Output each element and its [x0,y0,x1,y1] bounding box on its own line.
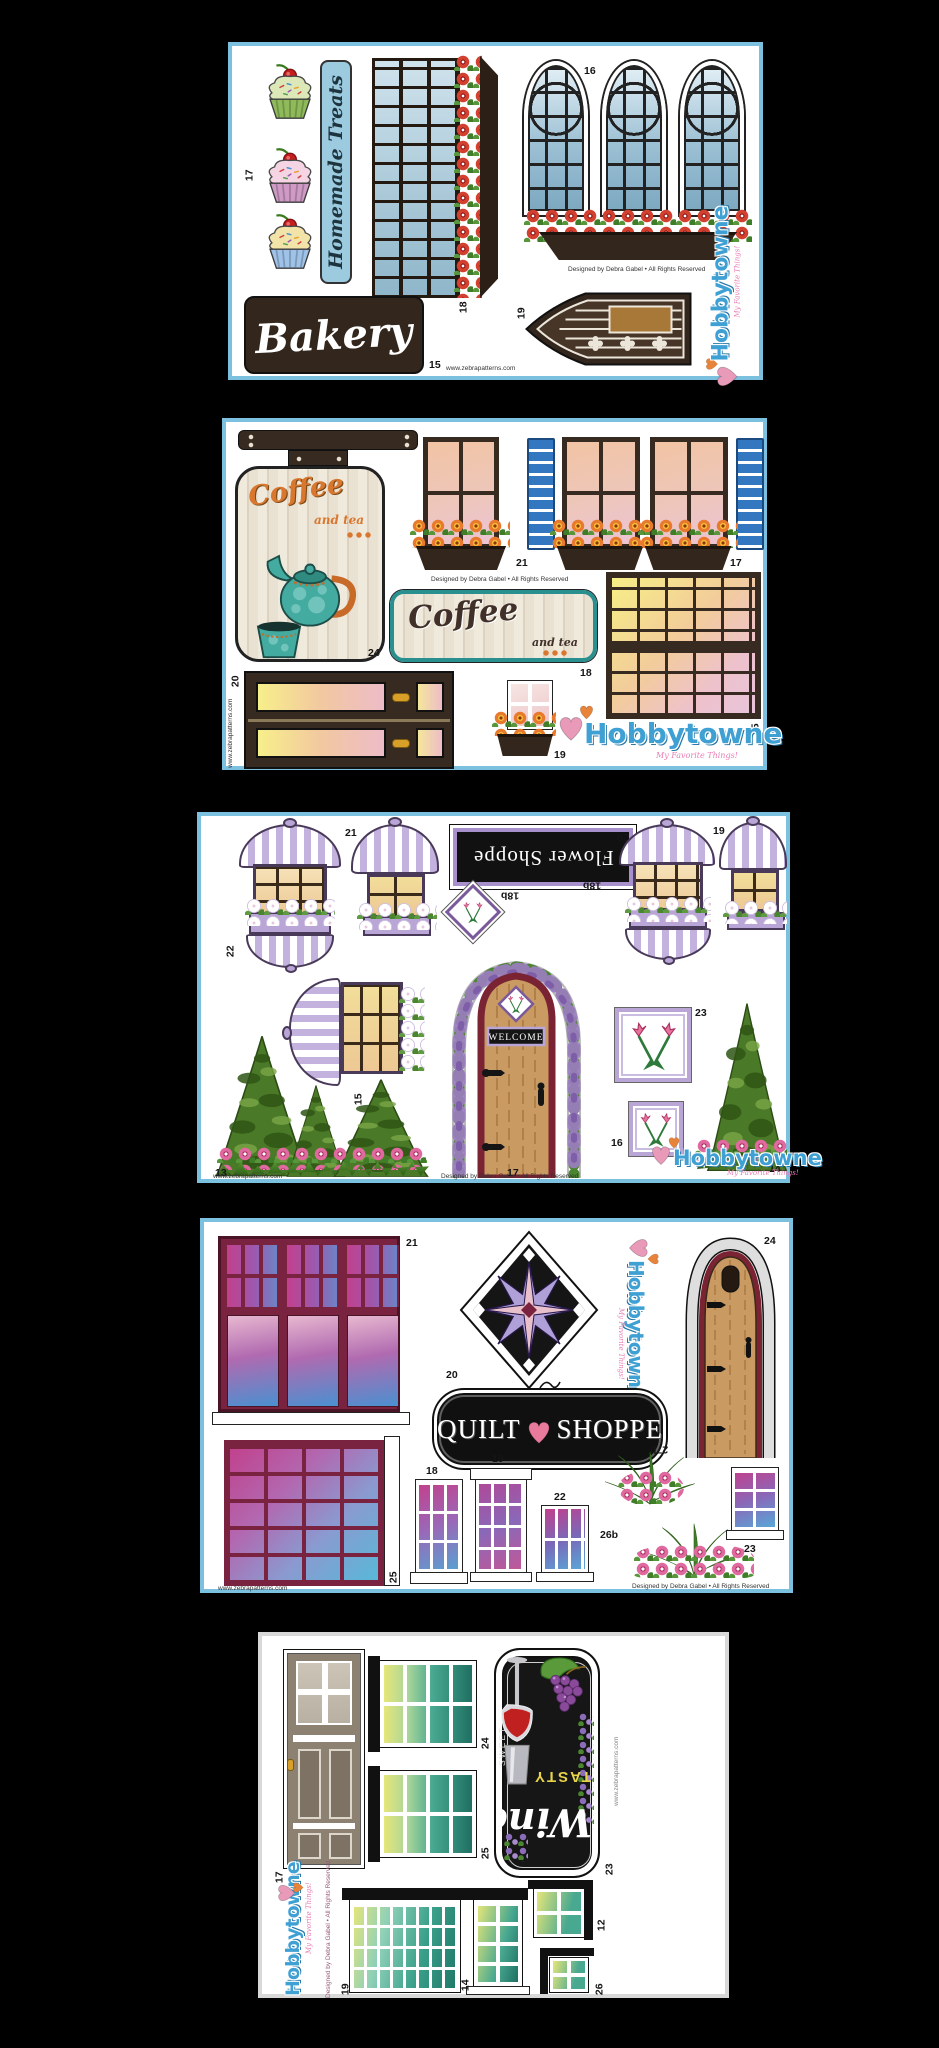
flower-box [494,734,556,756]
part-label: 20 [231,675,242,687]
quilt-star-block [456,1230,602,1390]
part-label: 21 [516,558,528,569]
homemade-treats-text: Homemade Treats [325,75,347,269]
part-label: 21 [406,1238,418,1249]
part-label: 18 [580,668,592,679]
coffee-flat-sign: Coffee and tea [390,590,597,662]
storefront-side-panel [480,56,498,298]
part-label: 26 [595,1983,606,1995]
white-flowers [245,898,335,926]
cupcake-pink [258,146,322,204]
white-flowers [399,986,425,1072]
door-handle [392,739,410,748]
sheet-bakery: 17 Homemade Treats 18 16 Designed by Deb… [228,42,763,380]
awning-window [341,982,403,1074]
logo-tagline: My Favorite Things! [656,752,738,760]
small-window [416,1480,462,1572]
part-label: 24 [764,1236,776,1247]
heart-icon [525,1414,553,1450]
window-bar [540,1948,548,1994]
sign-hanger-wire [538,1376,562,1390]
door-center-panel [610,307,672,333]
door-panel [298,1833,321,1859]
part-label: 14 [461,1979,472,1991]
hobbytowne-logo: Hobbytowne My Favorite Things! [649,1136,789,1180]
window-lintel-bar [368,1766,380,1862]
window-sill [212,1412,410,1425]
heart-icon [647,1252,660,1266]
gothic-door-rotated [524,279,694,380]
white-flowers [723,900,787,924]
part-label: 18 [426,1466,438,1477]
door-knob [287,1759,294,1771]
part-label: 22 [554,1492,566,1503]
part-label: 24 [481,1737,492,1749]
large-grid-window [606,572,761,719]
door-handle [392,693,410,702]
part-label: 12 [597,1919,608,1931]
credit-text: Designed by Debra Gabel • All Rights Res… [326,1861,333,1998]
small-teal-window [534,1889,584,1937]
arched-window-2 [602,61,666,215]
logo-tagline: My Favorite Things! [727,1170,799,1177]
website-text: www.zebrapatterns.com [218,1586,287,1593]
window-section-large-pane [347,1315,399,1407]
window-section-small-panes [227,1245,279,1307]
part-label: 21 [345,828,357,839]
window-lintel-bar [468,1888,528,1900]
door-panel [329,1749,352,1819]
arched-window-3 [680,61,744,215]
tasty-text: TASTY [530,1768,594,1785]
sign-bracket [238,430,418,450]
door-window-slot [722,1266,739,1292]
window-base [410,1572,468,1584]
bakery-sign-text: Bakery [254,307,413,362]
part-label: 23 [744,1544,756,1555]
tulip-motif [461,900,485,924]
white-flowers [625,896,711,922]
door-panel [329,1833,352,1859]
door-rail [293,1735,355,1742]
part-label: 26b [600,1530,618,1541]
sign-word-shoppe: SHOPPE [556,1414,663,1445]
bush-flowers [634,1544,754,1578]
basket-flowers [618,1470,684,1506]
tulip-motif [627,1018,681,1072]
door-divider [248,719,450,722]
window-lintel-bar [368,1656,380,1752]
window-lintel [470,1468,532,1480]
door-rail [293,1823,355,1829]
hobbytowne-logo: Designed by Debra Gabel • All Rights Res… [270,1882,334,1998]
credit-text: Designed by Debra Gabel • All Rights Res… [431,577,568,584]
small-window [542,1506,588,1572]
large-teal-window [350,1900,460,1992]
sheet-coffee: Coffee and tea 24 21 17 Designed by Debr… [222,418,767,770]
storefront-flower-strip [454,54,482,298]
wine-chalkboard-sign: TASTY SWEET TASTY Wine [494,1648,600,1878]
teal-window [380,1771,476,1857]
welcome-text: WELCOME [488,1033,543,1043]
door-small-window [416,682,444,712]
awning-cap [388,817,402,827]
door-small-window [416,728,444,758]
awning-inverted [246,934,334,968]
sign-strap [288,450,348,466]
window-base [536,1572,594,1582]
flower-strip [492,710,556,736]
sheet-wine: 17 24 25 TASTY SWEET TASTY Wine 23 www.z… [258,1632,729,1998]
arched-window-1 [524,61,588,215]
awning-cap [663,956,675,965]
heart-icon [292,1881,304,1894]
gothic-door-art [524,279,694,380]
flower-shoppe-sign: Flower Shoppe [453,828,633,886]
small-teal-window [550,1958,588,1992]
flower-box [552,546,648,570]
part-label: 18 [459,301,470,313]
part-label: 16 [611,1138,623,1149]
homemade-treats-sign: Homemade Treats [320,60,352,284]
welcome-sign: WELCOME [488,1028,544,1045]
website-text: www.zebrapatterns.com [228,690,235,768]
hobbytowne-logo: Hobbytowne My Favorite Things! [556,704,760,766]
flower-strip [410,518,510,548]
and-tea-text: and tea [532,636,578,649]
cupcake-yellow [258,212,322,270]
sweet-text: SWEET [497,1694,507,1766]
part-label: 17 [730,558,742,569]
narrow-teal-window [474,1900,522,1986]
awning-cap [660,818,674,828]
window-section-large-pane [287,1315,339,1407]
website-text: www.zebrapatterns.com [614,1696,621,1806]
teacup-icon [250,617,308,661]
logo-text: Hobbytowne [626,1260,646,1402]
window-section-small-panes [287,1245,339,1307]
part-label: 18b [583,880,601,891]
logo-tagline: My Favorite Things! [306,1882,313,1954]
logo-tagline: My Favorite Things! [617,1308,624,1380]
white-flowers [357,902,437,930]
window-bar [528,1880,592,1889]
part-label: 23 [605,1863,616,1875]
part-label: 25 [389,1571,400,1583]
flower-door-with-arch: WELCOME [439,928,594,1178]
part-label: 17 [245,169,256,181]
teal-window [380,1661,476,1747]
part-label: 25 [481,1847,492,1859]
storefront-window [372,58,460,298]
window-base [466,1986,530,1995]
awning-tall [351,824,439,874]
coffee-text: Coffee [246,468,346,512]
website-text: www.zebrapatterns.com [446,366,515,373]
door-panel [298,1749,321,1819]
vine-corner [504,1832,528,1862]
bakery-sign: Bakery [244,296,424,374]
part-label: 19 [492,1454,504,1465]
sign-word-quilt: QUILT [437,1414,521,1445]
window-base [470,1572,532,1582]
awning [239,824,341,868]
part-label: 16 [584,66,596,77]
flower-shoppe-text: Flower Shoppe [473,845,614,870]
flower-strip [550,518,650,548]
logo-text: Hobbytowne [584,720,782,748]
triple-window [218,1236,400,1412]
double-door-rotated [244,671,454,769]
sheet-quilt-shoppe: 21 20 Hobbytowne My Favorite Things! 24 … [200,1218,793,1593]
awning [619,824,715,866]
panel-door [284,1650,364,1868]
flower-box [411,546,511,570]
credit-text: Designed by Debra Gabel • All Rights Res… [441,1174,578,1181]
part-label: 20 [446,1370,458,1381]
and-tea-text: and tea [314,513,364,527]
awning-tall [719,822,787,870]
part-label: 19 [713,826,725,837]
flower-strip [638,518,738,548]
logo-text: Hobbytowne [673,1148,822,1169]
window-section-large-pane [227,1315,279,1407]
part-label: 19 [517,307,528,319]
part-label: 15 [429,360,441,371]
arched-door [682,1230,779,1458]
dot-ornaments [346,531,374,539]
part-label: 22 [226,945,237,957]
door-window [256,682,386,712]
pattern-sheets-collage: 17 Homemade Treats 18 16 Designed by Deb… [0,0,939,2048]
cupcake-green [258,62,322,120]
small-window [732,1468,778,1530]
hobbytowne-logo: Hobbytowne My Favorite Things! [602,1236,662,1362]
coffee-hanging-sign: Coffee and tea [235,466,385,662]
window-lintel-bar [342,1888,468,1900]
awning-cap [746,816,760,826]
door-window [256,728,386,758]
door-glass-panes [296,1661,352,1725]
awning-cap [283,818,297,828]
window-bar [584,1880,593,1940]
part-label: 24 [368,648,380,659]
logo-text: Hobbytowne [711,206,733,362]
part-label: 19 [341,1983,352,1995]
part-label: 27b [650,1444,668,1455]
large-grid-window [224,1440,384,1586]
part-label: 18b [501,890,519,901]
shutter-right [736,438,764,550]
window-sill [726,1530,784,1540]
window-section-small-panes [347,1245,399,1307]
credit-text: Designed by Debra Gabel • All Rights Res… [568,267,705,274]
door-jamb-strip [384,1436,400,1586]
flower-box [640,546,736,570]
credit-text: Designed by Debra Gabel • All Rights Res… [632,1584,769,1591]
small-window [476,1480,526,1572]
hobbytowne-logo: Hobbytowne My Favorite Things! [699,240,754,390]
window-bar [540,1948,594,1956]
awning-cap [285,964,297,973]
coffee-text: Coffee [407,591,520,636]
logo-tagline: My Favorite Things! [735,246,742,318]
sheet-flower-shoppe: 21 22 Flower Shoppe 18b 18b 20 19 15 [197,812,790,1183]
website-text: www.zebrapatterns.com [213,1174,282,1181]
dot-ornaments [542,649,570,657]
